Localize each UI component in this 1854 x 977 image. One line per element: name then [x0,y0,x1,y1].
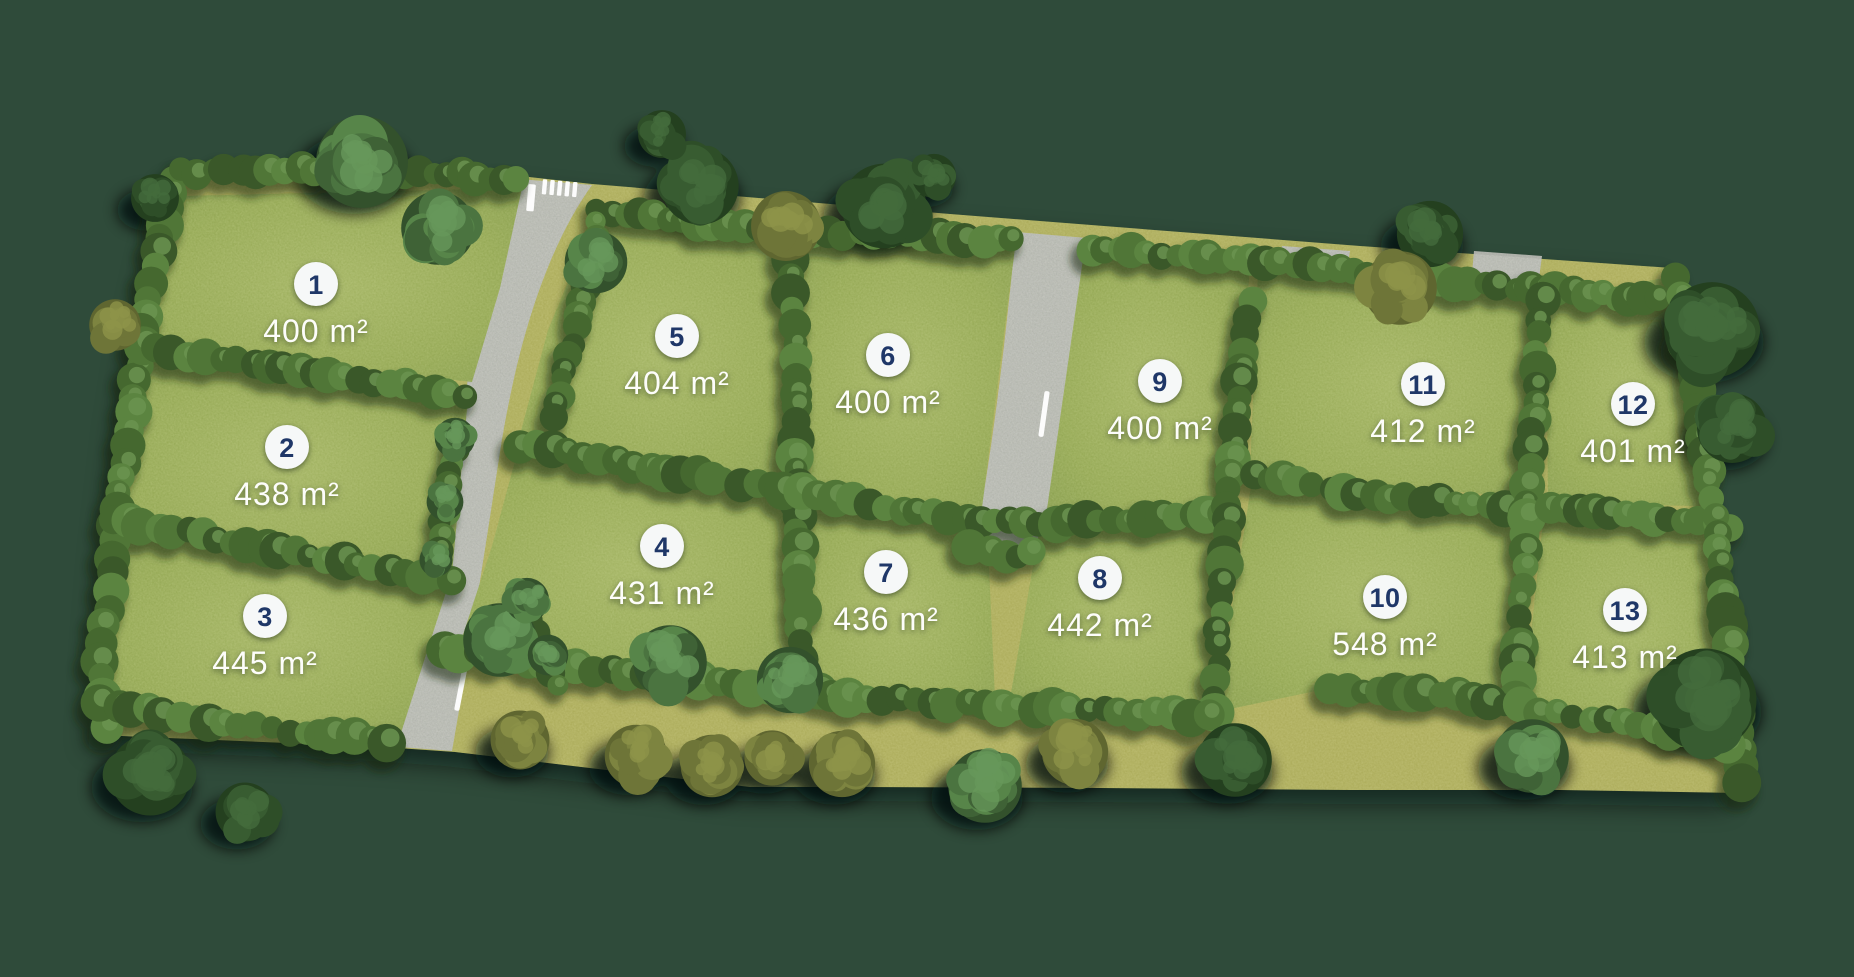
lot-area-text-7: 436 m² [833,601,939,637]
lot-number-2: 2 [279,433,295,463]
lot-number-10: 10 [1369,583,1400,613]
lot-number-11: 11 [1408,370,1438,400]
lot-area-text-2: 438 m² [234,476,340,512]
lot-number-5: 5 [669,322,685,352]
lot-area-text-11: 412 m² [1370,413,1476,449]
lot-area-text-3: 445 m² [212,645,318,681]
lot-number-6: 6 [880,341,896,371]
lot-area-text-4: 431 m² [609,575,715,611]
lot-area-text-6: 400 m² [835,384,941,420]
lot-number-3: 3 [257,602,273,632]
lot-area-text-9: 400 m² [1107,410,1213,446]
lot-number-7: 7 [878,558,894,588]
site-plan-stage: 1400 m² 2438 m² 3445 m² 4431 m² 5404 m² … [0,0,1854,977]
lot-number-1: 1 [308,270,324,300]
tree [131,174,179,222]
lot-area-text-10: 548 m² [1332,626,1438,662]
lot-area-6[interactable] [796,240,1016,508]
lot-area-text-8: 442 m² [1047,607,1153,643]
lot-number-12: 12 [1617,390,1648,420]
lot-number-4: 4 [654,532,670,562]
lot-area-text-13: 413 m² [1572,639,1678,675]
lot-number-13: 13 [1609,596,1640,626]
lot-area-text-12: 401 m² [1580,433,1686,469]
lot-number-8: 8 [1092,564,1108,594]
lot-number-9: 9 [1152,367,1168,397]
lot-area-text-5: 404 m² [624,365,730,401]
tree [491,710,550,769]
lot-area-text-1: 400 m² [263,313,369,349]
tree [757,647,823,714]
site-plan-map: 1400 m² 2438 m² 3445 m² 4431 m² 5404 m² … [0,0,1854,977]
